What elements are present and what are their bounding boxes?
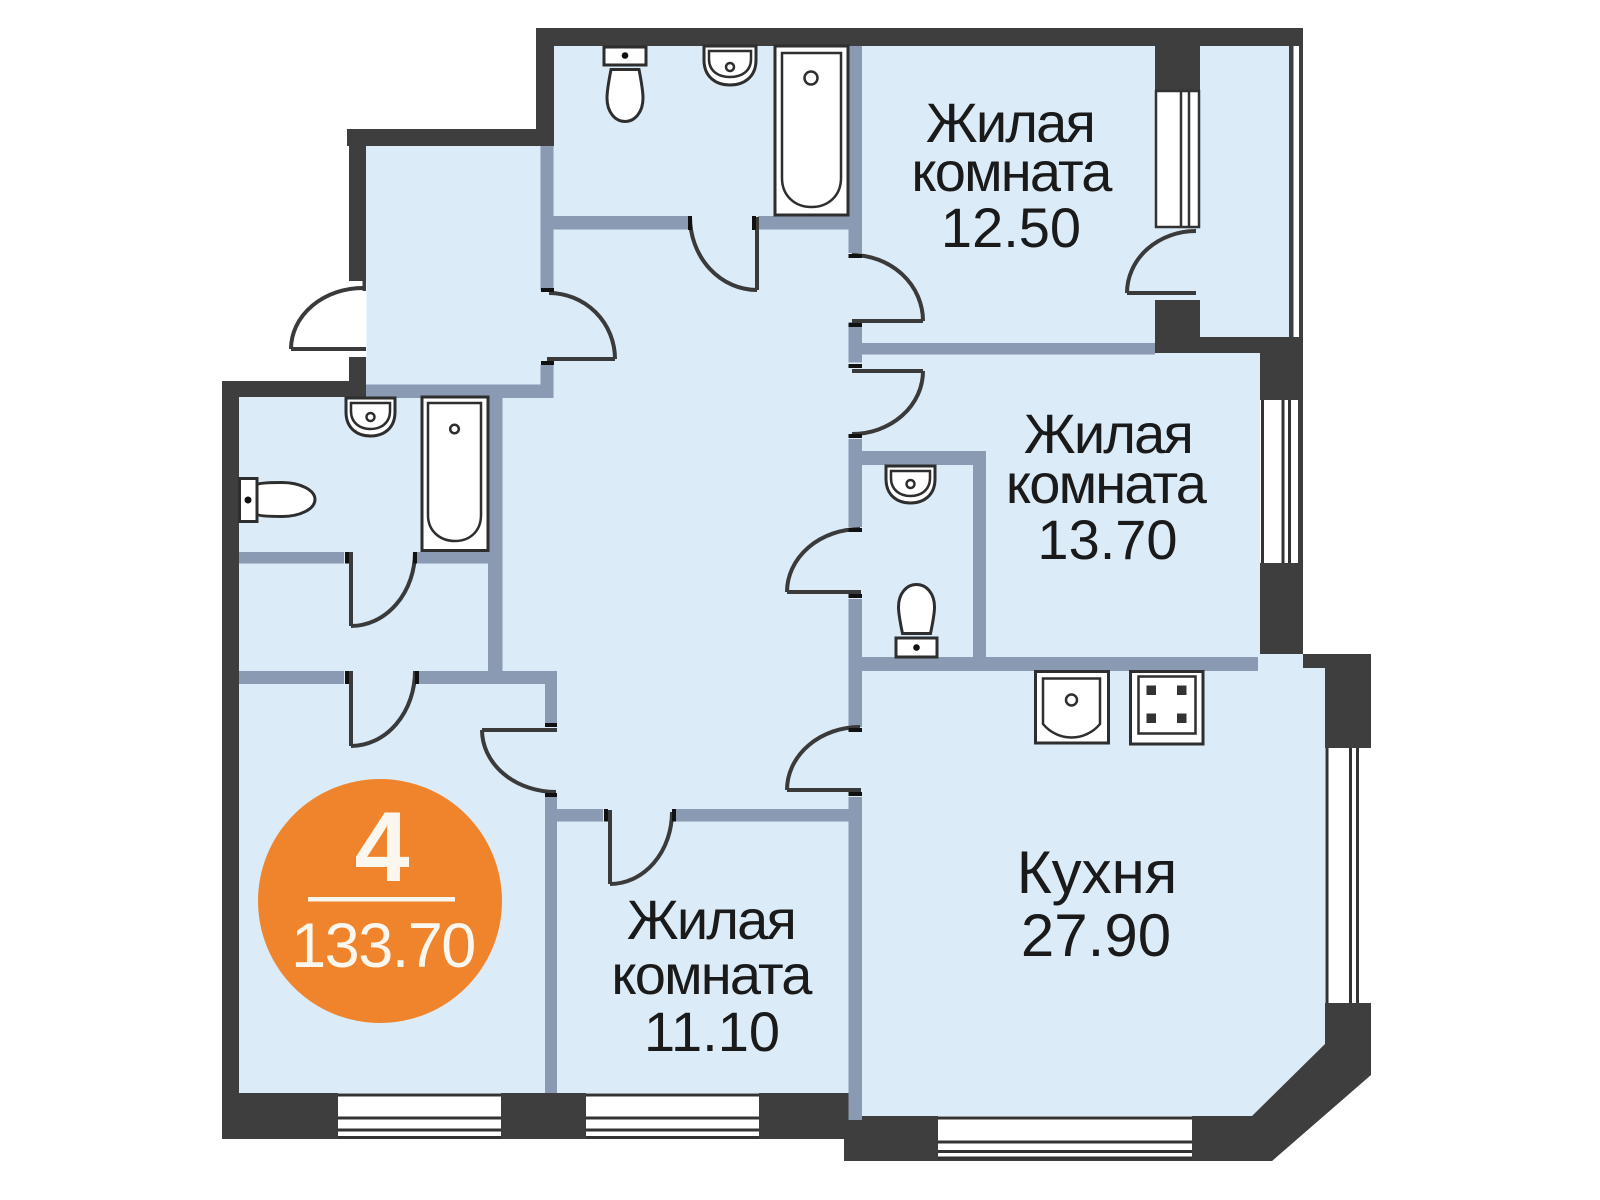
- svg-text:27.90: 27.90: [1021, 902, 1171, 969]
- svg-text:комната: комната: [611, 943, 813, 1006]
- svg-text:133.70: 133.70: [291, 911, 475, 981]
- svg-text:4: 4: [354, 791, 409, 902]
- svg-text:Жилая: Жилая: [627, 888, 795, 951]
- svg-text:11.10: 11.10: [644, 1000, 780, 1063]
- svg-text:13.70: 13.70: [1037, 508, 1177, 571]
- svg-text:Кухня: Кухня: [1017, 839, 1178, 906]
- svg-text:12.50: 12.50: [941, 196, 1081, 259]
- svg-text:комната: комната: [911, 140, 1113, 203]
- svg-text:комната: комната: [1006, 452, 1208, 515]
